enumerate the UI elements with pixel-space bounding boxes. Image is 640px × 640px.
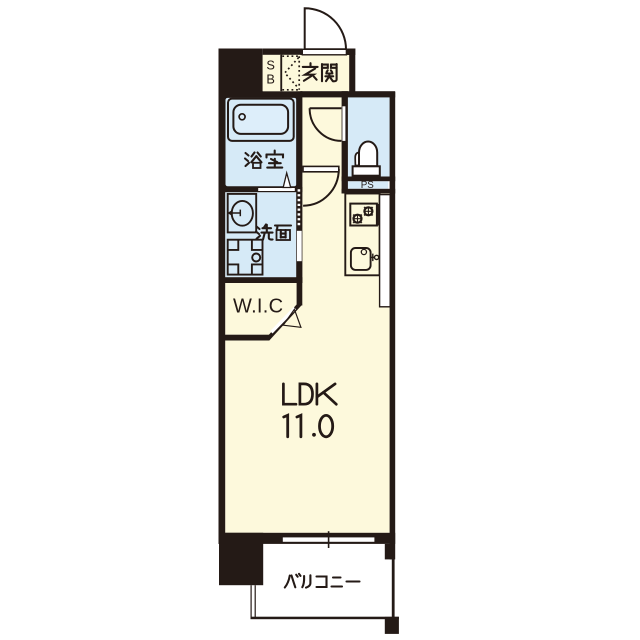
svg-text:PS: PS bbox=[361, 180, 375, 191]
svg-text:B: B bbox=[266, 72, 275, 87]
svg-text:W.I.C: W.I.C bbox=[233, 296, 283, 318]
svg-text:S: S bbox=[266, 57, 275, 72]
